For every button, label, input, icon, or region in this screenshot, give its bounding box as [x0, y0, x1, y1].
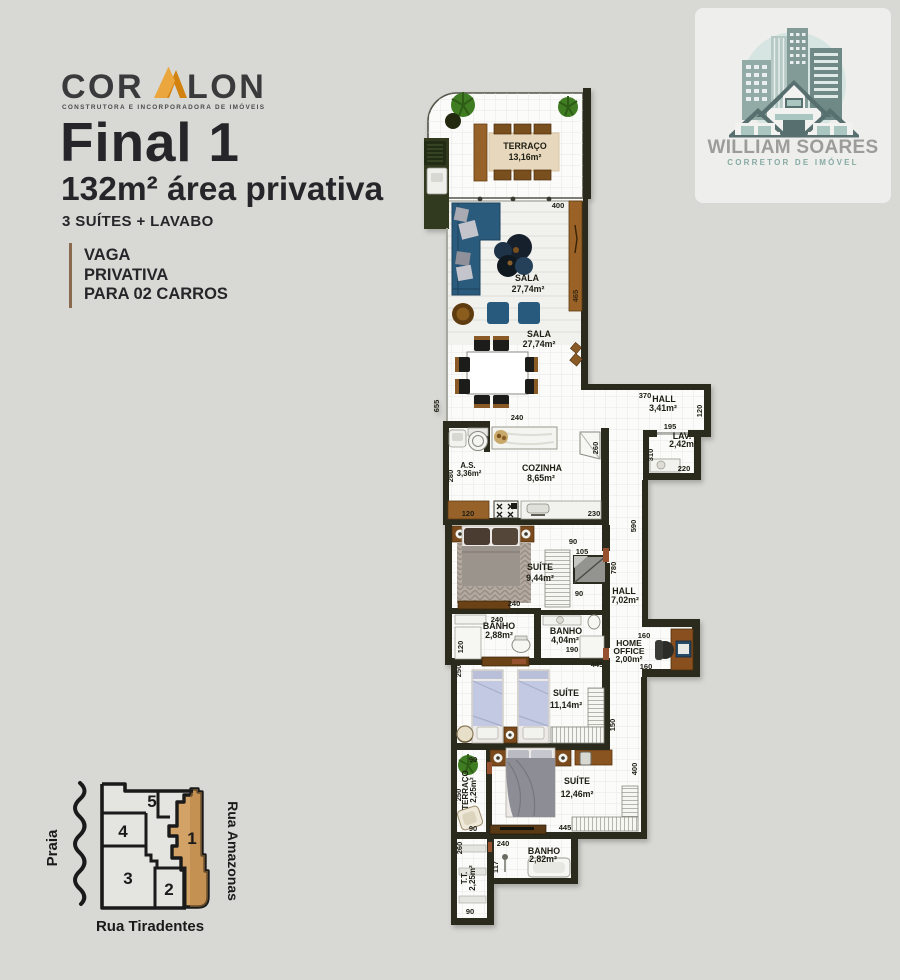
svg-text:240: 240 — [491, 615, 504, 624]
svg-text:105: 105 — [576, 547, 589, 556]
svg-text:2: 2 — [164, 880, 173, 899]
svg-text:2,25m²: 2,25m² — [468, 865, 477, 891]
svg-text:SALA: SALA — [515, 273, 540, 283]
svg-text:190: 190 — [566, 645, 579, 654]
svg-text:4,04m²: 4,04m² — [551, 635, 579, 645]
svg-text:150: 150 — [608, 719, 617, 732]
svg-text:90: 90 — [466, 907, 474, 916]
svg-text:27,74m²: 27,74m² — [523, 339, 556, 349]
svg-text:465: 465 — [571, 290, 580, 303]
svg-text:COR: COR — [61, 68, 144, 106]
svg-text:120: 120 — [456, 641, 465, 654]
svg-text:SUÍTE: SUÍTE — [564, 776, 590, 786]
svg-text:SALA: SALA — [527, 329, 552, 339]
svg-text:3,41m²: 3,41m² — [649, 403, 677, 413]
svg-text:445: 445 — [559, 823, 572, 832]
svg-text:LON: LON — [187, 68, 266, 106]
svg-text:590: 590 — [629, 520, 638, 533]
svg-text:117: 117 — [491, 861, 500, 873]
svg-text:2,88m²: 2,88m² — [485, 630, 513, 640]
svg-text:3,36m²: 3,36m² — [457, 469, 482, 478]
svg-text:90: 90 — [469, 755, 477, 764]
svg-text:Praia: Praia — [44, 829, 61, 866]
svg-text:SUÍTE: SUÍTE — [527, 562, 553, 572]
svg-text:27,74m²: 27,74m² — [512, 284, 545, 294]
svg-text:220: 220 — [678, 464, 691, 473]
svg-text:Rua Tiradentes: Rua Tiradentes — [96, 918, 204, 935]
svg-text:1: 1 — [187, 829, 196, 848]
svg-text:655: 655 — [432, 400, 441, 413]
svg-text:90: 90 — [575, 589, 583, 598]
svg-text:240: 240 — [508, 599, 521, 608]
svg-text:240: 240 — [511, 413, 524, 422]
svg-text:160: 160 — [640, 662, 653, 671]
svg-text:260: 260 — [455, 842, 464, 855]
svg-text:11,14m²: 11,14m² — [550, 700, 582, 710]
svg-text:310: 310 — [646, 449, 655, 462]
svg-text:2,82m²: 2,82m² — [529, 854, 557, 864]
svg-text:TERRAÇO: TERRAÇO — [503, 141, 547, 151]
svg-text:SUÍTE: SUÍTE — [553, 688, 579, 698]
svg-text:9,44m²: 9,44m² — [526, 573, 554, 583]
svg-text:2,25m²: 2,25m² — [469, 777, 478, 803]
svg-text:Rua Amazonas: Rua Amazonas — [225, 801, 241, 901]
svg-text:3: 3 — [123, 869, 132, 888]
svg-text:780: 780 — [609, 562, 618, 575]
svg-text:370: 370 — [639, 391, 652, 400]
svg-text:280: 280 — [446, 470, 455, 483]
svg-text:240: 240 — [497, 839, 510, 848]
svg-text:7,02m²: 7,02m² — [611, 595, 639, 605]
svg-text:90: 90 — [569, 537, 577, 546]
svg-text:120: 120 — [695, 405, 704, 418]
svg-text:250: 250 — [454, 665, 463, 678]
svg-text:COZINHA: COZINHA — [522, 463, 563, 473]
svg-text:4: 4 — [118, 822, 128, 841]
svg-text:2,42m²: 2,42m² — [669, 439, 697, 449]
svg-text:2,00m²: 2,00m² — [616, 654, 643, 664]
svg-text:5: 5 — [147, 792, 156, 811]
svg-text:195: 195 — [664, 422, 677, 431]
svg-text:445: 445 — [591, 660, 604, 669]
svg-text:13,16m²: 13,16m² — [509, 152, 542, 162]
svg-text:120: 120 — [462, 509, 475, 518]
svg-text:8,65m²: 8,65m² — [527, 473, 555, 483]
svg-text:250: 250 — [454, 789, 463, 802]
svg-text:260: 260 — [591, 442, 600, 455]
svg-text:160: 160 — [638, 631, 651, 640]
svg-text:230: 230 — [588, 509, 601, 518]
svg-text:90: 90 — [469, 824, 477, 833]
svg-text:400: 400 — [552, 201, 565, 210]
svg-text:12,46m²: 12,46m² — [561, 789, 594, 799]
svg-text:400: 400 — [630, 763, 639, 776]
